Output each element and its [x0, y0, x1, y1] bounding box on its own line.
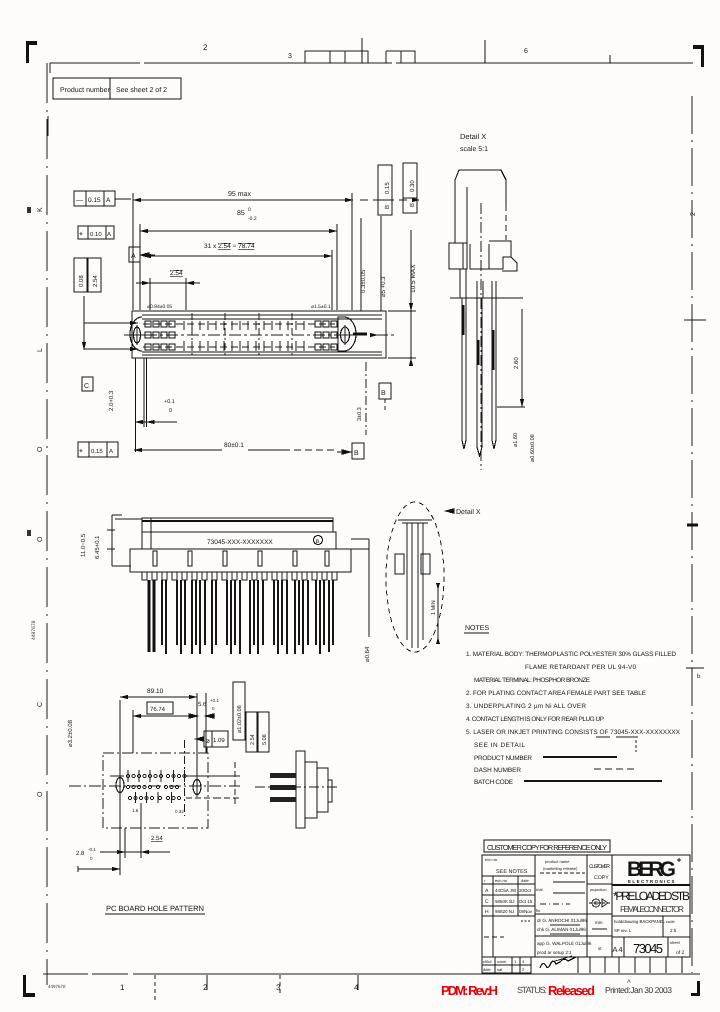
svg-text:FLAME RETARDANT PER UL 94-V0: FLAME RETARDANT PER UL 94-V0 [525, 664, 636, 671]
svg-text:⌀3.2±0.08: ⌀3.2±0.08 [67, 719, 74, 747]
svg-text:PRODUCT NUMBER: PRODUCT NUMBER [474, 755, 532, 762]
svg-text:C: C [485, 899, 489, 905]
svg-text:—: — [76, 197, 83, 204]
svg-text:MATERIAL TERMINAL: PHOSPHOR BR: MATERIAL TERMINAL: PHOSPHOR BRONZE [474, 677, 590, 684]
svg-text:K: K [37, 207, 44, 212]
svg-text:CUSTOMER: CUSTOMER [589, 864, 610, 870]
svg-text:5. LASER OR INKJET PRINTING CO: 5. LASER OR INKJET PRINTING CONSISTS OF … [466, 729, 681, 736]
svg-text:PC BOARD HOLE PATTERN: PC BOARD HOLE PATTERN [106, 904, 204, 913]
svg-text:B: B [409, 203, 416, 207]
svg-text:sat: sat [497, 967, 503, 972]
svg-text:2.54: 2.54 [170, 270, 183, 277]
svg-text:89.10: 89.10 [147, 688, 164, 695]
svg-text:A: A [107, 231, 111, 238]
svg-text:SP rev. L: SP rev. L [614, 928, 632, 933]
svg-text:chk G. ALIMAN 01Jul96: chk G. ALIMAN 01Jul96 [537, 927, 586, 932]
svg-text:PDM: Rev:H: PDM: Rev:H [441, 983, 498, 998]
svg-text:L: L [37, 348, 44, 352]
svg-text:B: B [381, 390, 386, 397]
svg-text:A4: A4 [613, 945, 623, 954]
svg-text:date: date [521, 878, 530, 883]
svg-text:73045-XXX-XXXXXXX: 73045-XXX-XXXXXXX [207, 539, 273, 546]
svg-text:projection: projection [590, 888, 606, 892]
svg-text:⌀0.64: ⌀0.64 [364, 646, 371, 662]
svg-text:⌀1.60: ⌀1.60 [513, 433, 519, 447]
svg-text:2: 2 [690, 212, 697, 216]
svg-text:2.54: 2.54 [92, 275, 99, 287]
svg-text:product name: product name [545, 859, 570, 864]
svg-text:0: 0 [169, 408, 172, 414]
svg-text:DASH NUMBER: DASH NUMBER [474, 767, 521, 774]
svg-text:85: 85 [237, 210, 245, 217]
svg-text:6: 6 [524, 48, 528, 55]
svg-text:0.32: 0.32 [175, 809, 184, 814]
svg-text:+0.1: +0.1 [210, 698, 219, 703]
svg-text:Detail X: Detail X [456, 508, 481, 516]
svg-text:*PRE LOADED STB: *PRE LOADED STB [613, 889, 690, 903]
svg-text:SEE IN DETAIL: SEE IN DETAIL [474, 742, 525, 749]
svg-text:1.09: 1.09 [213, 737, 225, 744]
svg-text:3: 3 [288, 53, 292, 60]
svg-text:2.60: 2.60 [513, 357, 520, 369]
svg-text:chkd: chkd [483, 959, 491, 964]
svg-text:FEMALE CONNECTOR: FEMALE CONNECTOR [620, 904, 684, 914]
svg-text:0.08: 0.08 [78, 275, 85, 287]
svg-text:BATCH CODE: BATCH CODE [474, 779, 513, 786]
svg-text:⌀0.94±0.05: ⌀0.94±0.05 [147, 304, 172, 310]
svg-text:6.45+0.1: 6.45+0.1 [94, 535, 101, 559]
svg-text:⌀0.60±0.08: ⌀0.60±0.08 [530, 434, 536, 462]
svg-text:date: date [483, 967, 492, 972]
svg-text:20Oct: 20Oct [519, 888, 532, 893]
svg-text:08Nov: 08Nov [519, 909, 533, 914]
svg-text:0.15: 0.15 [384, 182, 391, 194]
svg-text:⌖: ⌖ [79, 448, 83, 455]
svg-text:A: A [131, 253, 136, 260]
svg-text:3±0.3: 3±0.3 [357, 407, 363, 421]
svg-text:1. MATERIAL BODY: THERMOPLASTI: 1. MATERIAL BODY: THERMOPLASTIC POLYESTE… [466, 651, 676, 658]
svg-text:scale 5:1: scale 5:1 [460, 145, 488, 153]
svg-text:0.15: 0.15 [91, 448, 103, 455]
svg-text:O: O [37, 536, 44, 542]
svg-text:CUSTOMER COPY FOR REFERENCE ON: CUSTOMER COPY FOR REFERENCE ONLY [487, 843, 607, 852]
svg-text:O: O [37, 446, 44, 452]
svg-text:H: H [485, 909, 489, 915]
svg-text:0: 0 [248, 207, 251, 213]
svg-text:4497678: 4497678 [48, 984, 66, 989]
svg-text:code: code [666, 919, 675, 924]
svg-text:0.30: 0.30 [409, 180, 416, 192]
svg-text:COPY: COPY [594, 875, 609, 881]
svg-text:2.54: 2.54 [250, 734, 256, 745]
svg-text:2.0+0.3: 2.0+0.3 [108, 390, 115, 411]
svg-text:Detail X: Detail X [460, 132, 486, 141]
svg-text:mm: mm [595, 920, 603, 925]
svg-text:95 max: 95 max [228, 191, 251, 198]
svg-text:O: O [37, 791, 44, 797]
svg-text:0.10: 0.10 [90, 231, 102, 238]
svg-text:0.15: 0.15 [88, 197, 101, 204]
svg-text:31 x 2.54 = 78.74: 31 x 2.54 = 78.74 [204, 243, 255, 250]
svg-text:2:5: 2:5 [670, 928, 677, 933]
svg-text:4497678: 4497678 [31, 620, 37, 640]
svg-text:76.74: 76.74 [150, 706, 166, 713]
svg-text:Oct 15: Oct 15 [519, 899, 533, 904]
svg-text:B: B [316, 539, 320, 545]
svg-text:SEE NOTES: SEE NOTES [496, 869, 528, 875]
svg-text:3. UNDERPLATING 2 μm Ni ALL OV: 3. UNDERPLATING 2 μm Ni ALL OVER [466, 703, 586, 710]
svg-text:-0.1: -0.1 [88, 847, 96, 852]
svg-text:sheet: sheet [670, 940, 681, 945]
svg-text:44C5A JW: 44C5A JW [495, 888, 517, 893]
svg-text:Printed:Jan 30 2003: Printed:Jan 30 2003 [605, 985, 672, 995]
svg-text:⌖: ⌖ [79, 231, 83, 238]
svg-text:STATUS:: STATUS: [517, 985, 547, 995]
svg-text:B: B [384, 205, 391, 209]
svg-text:hold/drawing BACKPANEL: hold/drawing BACKPANEL [614, 919, 666, 924]
svg-text:ecn no: ecn no [495, 878, 508, 883]
svg-text:2.8: 2.8 [76, 850, 85, 857]
svg-text:⌀1.5±0.1: ⌀1.5±0.1 [311, 304, 331, 310]
svg-text:A: A [106, 197, 111, 204]
svg-text:⌀: ⌀ [206, 738, 210, 745]
svg-text:(marketing release): (marketing release) [543, 866, 578, 871]
svg-text:B: B [354, 450, 359, 457]
svg-text:C: C [37, 702, 44, 707]
svg-text:5.08: 5.08 [262, 734, 268, 745]
svg-text:73045: 73045 [633, 941, 663, 956]
svg-text:1: 1 [120, 983, 125, 992]
svg-text:prod ar setup 2:1: prod ar setup 2:1 [537, 950, 572, 955]
svg-text:4. CONTACT LENGTH IS ONLY FOR: 4. CONTACT LENGTH IS ONLY FOR REAR PLUG … [466, 716, 604, 723]
svg-text:Product number: Product number [60, 86, 110, 94]
svg-text:NOTES: NOTES [465, 625, 489, 632]
svg-text:-0.2: -0.2 [248, 216, 257, 222]
svg-text:dr G. ANROCHI 01Jul96: dr G. ANROCHI 01Jul96 [537, 918, 587, 923]
svg-text:of 2: of 2 [676, 950, 685, 956]
svg-text:1.6: 1.6 [132, 808, 139, 813]
svg-text:A: A [627, 979, 631, 985]
svg-text:fin: fin [536, 908, 540, 913]
svg-text:ecn no.: ecn no. [485, 857, 498, 862]
svg-text:mat: mat [536, 887, 544, 892]
svg-text:11.0−0.5: 11.0−0.5 [80, 533, 87, 557]
svg-text:9860K BJ: 9860K BJ [495, 899, 515, 904]
svg-text:98820 NJ: 98820 NJ [495, 909, 514, 914]
svg-text:A: A [109, 448, 113, 455]
svg-text:app G. WALPOLE 01Jul96: app G. WALPOLE 01Jul96 [537, 941, 592, 946]
svg-text:xxsm: xxsm [497, 959, 507, 964]
svg-text:1 MIN: 1 MIN [431, 600, 437, 615]
svg-text:C: C [84, 383, 89, 390]
svg-text:⌀1.02±0.08: ⌀1.02±0.08 [237, 705, 243, 733]
svg-text:2.54: 2.54 [151, 835, 163, 842]
svg-text:80±0.1: 80±0.1 [224, 442, 244, 449]
svg-text:+0.1: +0.1 [164, 399, 175, 405]
svg-text:2. FOR PLATING CONTACT AREA FE: 2. FOR PLATING CONTACT AREA FEMALE PART … [466, 690, 646, 697]
svg-text:See sheet 2 of 2: See sheet 2 of 2 [116, 86, 167, 94]
svg-text:2: 2 [203, 43, 208, 52]
svg-text:BERG: BERG [627, 858, 676, 881]
svg-text:Released: Released [548, 983, 595, 998]
svg-text:ELECTRONICS: ELECTRONICS [628, 879, 676, 884]
